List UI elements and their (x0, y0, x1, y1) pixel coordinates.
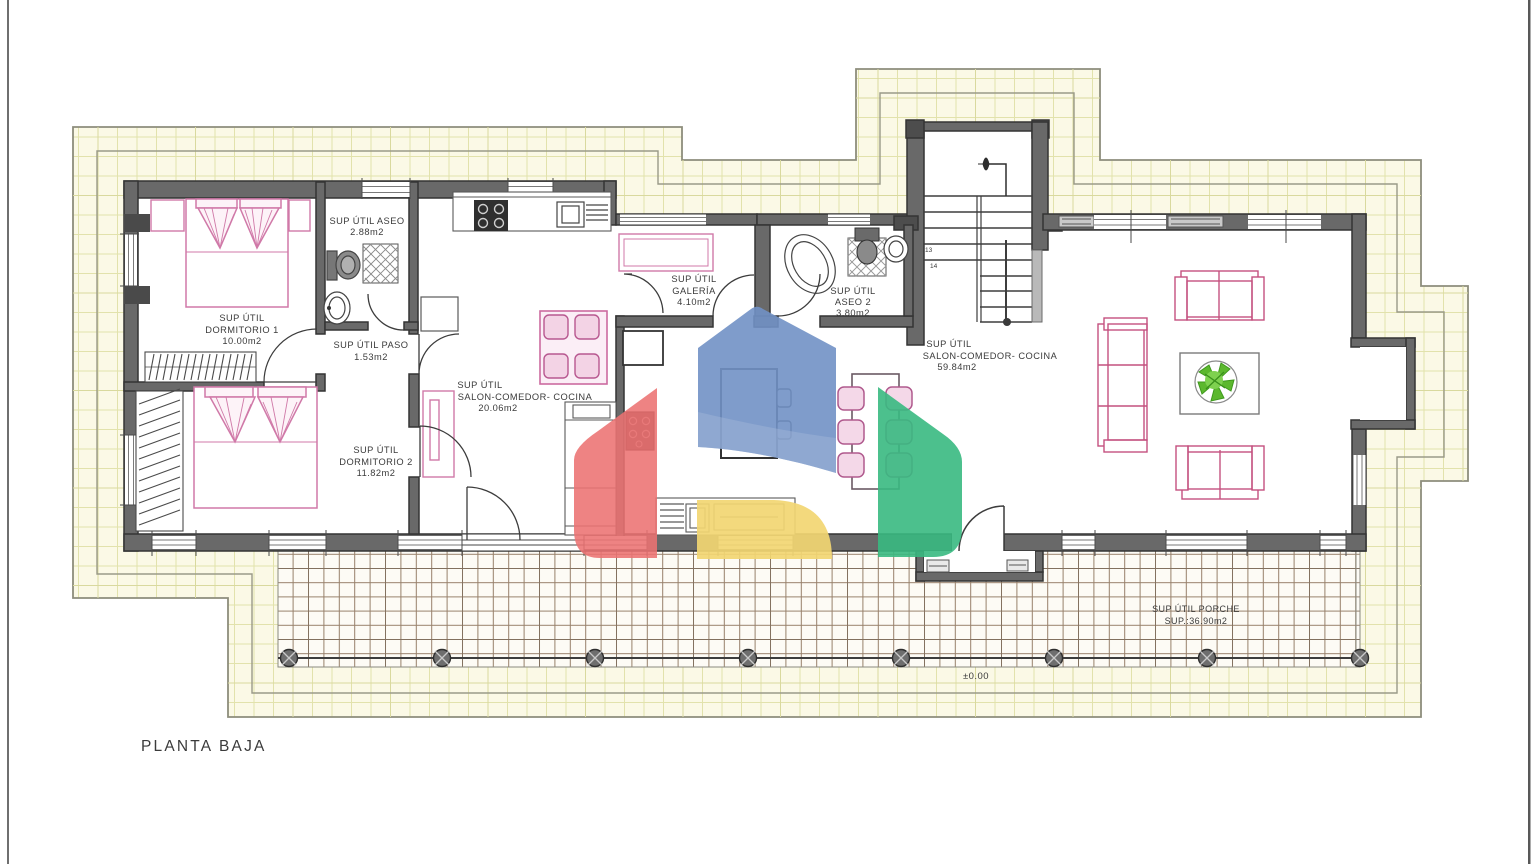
svg-text:ASEO 2: ASEO 2 (835, 297, 871, 307)
svg-text:SUP ÚTIL: SUP ÚTIL (671, 274, 716, 284)
svg-text:DORMITORIO 2: DORMITORIO 2 (339, 457, 412, 467)
svg-text:59.84m2: 59.84m2 (937, 362, 976, 372)
svg-text:SUP ÚTIL PORCHE: SUP ÚTIL PORCHE (1152, 604, 1240, 614)
svg-text:SALON-COMEDOR- COCINA: SALON-COMEDOR- COCINA (923, 351, 1058, 361)
svg-text:14: 14 (930, 263, 938, 270)
svg-text:SUP ÚTIL: SUP ÚTIL (926, 339, 971, 349)
svg-text:1.53m2: 1.53m2 (354, 352, 388, 362)
svg-text:SUP ÚTIL: SUP ÚTIL (353, 445, 398, 455)
svg-text:20.06m2: 20.06m2 (478, 403, 517, 413)
svg-text:SUP ÚTIL: SUP ÚTIL (219, 313, 264, 323)
svg-text:4.10m2: 4.10m2 (677, 297, 711, 307)
svg-text:11.82m2: 11.82m2 (357, 468, 396, 478)
svg-text:GALERÍA: GALERÍA (672, 286, 716, 296)
svg-text:DORMITORIO 1: DORMITORIO 1 (205, 325, 278, 335)
svg-text:SUP ÚTIL PASO: SUP ÚTIL PASO (334, 340, 409, 350)
svg-text:SUP ÚTIL: SUP ÚTIL (457, 380, 502, 390)
svg-text:SUP ÚTIL ASEO: SUP ÚTIL ASEO (329, 216, 404, 226)
svg-text:SUP ÚTIL: SUP ÚTIL (830, 286, 875, 296)
svg-text:3.80m2: 3.80m2 (836, 308, 870, 318)
svg-text:PLANTA BAJA: PLANTA BAJA (141, 738, 267, 755)
svg-text:SUP.:36.90m2: SUP.:36.90m2 (1165, 616, 1228, 626)
svg-text:SALON-COMEDOR- COCINA: SALON-COMEDOR- COCINA (458, 392, 593, 402)
svg-text:±0.00: ±0.00 (963, 671, 989, 682)
svg-text:10.00m2: 10.00m2 (222, 336, 261, 346)
svg-text:2.88m2: 2.88m2 (350, 227, 384, 237)
svg-text:13: 13 (925, 247, 933, 254)
